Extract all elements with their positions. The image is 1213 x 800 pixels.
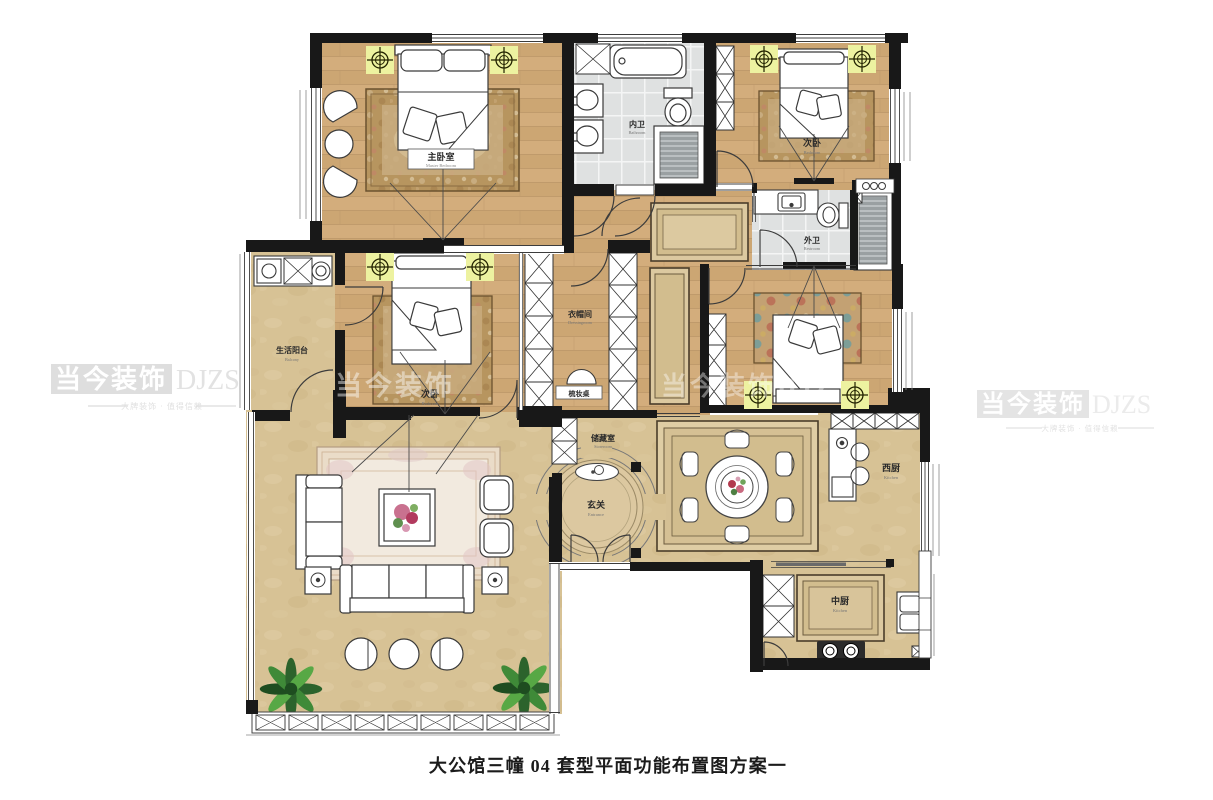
svg-text:生活阳台: 生活阳台	[276, 345, 308, 355]
svg-text:玄关: 玄关	[587, 499, 605, 510]
svg-text:Balcony: Balcony	[285, 357, 300, 362]
svg-text:Bedroom: Bedroom	[804, 150, 821, 155]
svg-text:主卧室: 主卧室	[427, 151, 454, 162]
svg-text:Dressingroom: Dressingroom	[568, 320, 592, 325]
svg-text:当今装饰: 当今装饰	[55, 364, 167, 394]
svg-text:DJZS: DJZS	[1092, 390, 1151, 419]
svg-text:Restroom: Restroom	[804, 246, 821, 251]
svg-text:外卫: 外卫	[804, 235, 820, 245]
svg-text:当今装饰: 当今装饰	[335, 370, 455, 401]
svg-text:中厨: 中厨	[831, 595, 849, 606]
svg-text:Master Bedroom: Master Bedroom	[426, 163, 457, 168]
svg-text:次卧: 次卧	[803, 137, 821, 148]
svg-text:大牌装饰 · 值得信赖: 大牌装饰 · 值得信赖	[121, 401, 203, 411]
svg-text:Bedroom: Bedroom	[422, 401, 439, 406]
svg-text:当今装饰: 当今装饰	[981, 390, 1085, 418]
svg-text:Entrance: Entrance	[588, 512, 604, 517]
svg-text:储藏室: 储藏室	[590, 433, 615, 443]
svg-text:西厨: 西厨	[882, 463, 900, 473]
svg-text:大公馆三幢 04 套型平面功能布置图方案一: 大公馆三幢 04 套型平面功能布置图方案一	[429, 755, 787, 776]
svg-text:Storeroom: Storeroom	[594, 444, 612, 449]
svg-text:大牌装饰 · 值得信赖: 大牌装饰 · 值得信赖	[1041, 423, 1118, 433]
svg-text:梳妆桌: 梳妆桌	[569, 389, 590, 398]
svg-text:当今装饰DJZ: 当今装饰DJZ	[661, 371, 835, 401]
svg-text:内卫: 内卫	[629, 119, 645, 129]
svg-text:Bathroom: Bathroom	[629, 130, 646, 135]
svg-text:衣帽间: 衣帽间	[568, 309, 592, 319]
svg-text:Kitchen: Kitchen	[833, 608, 848, 613]
svg-text:Kitchen: Kitchen	[884, 475, 899, 480]
svg-text:DJZS: DJZS	[176, 365, 240, 396]
